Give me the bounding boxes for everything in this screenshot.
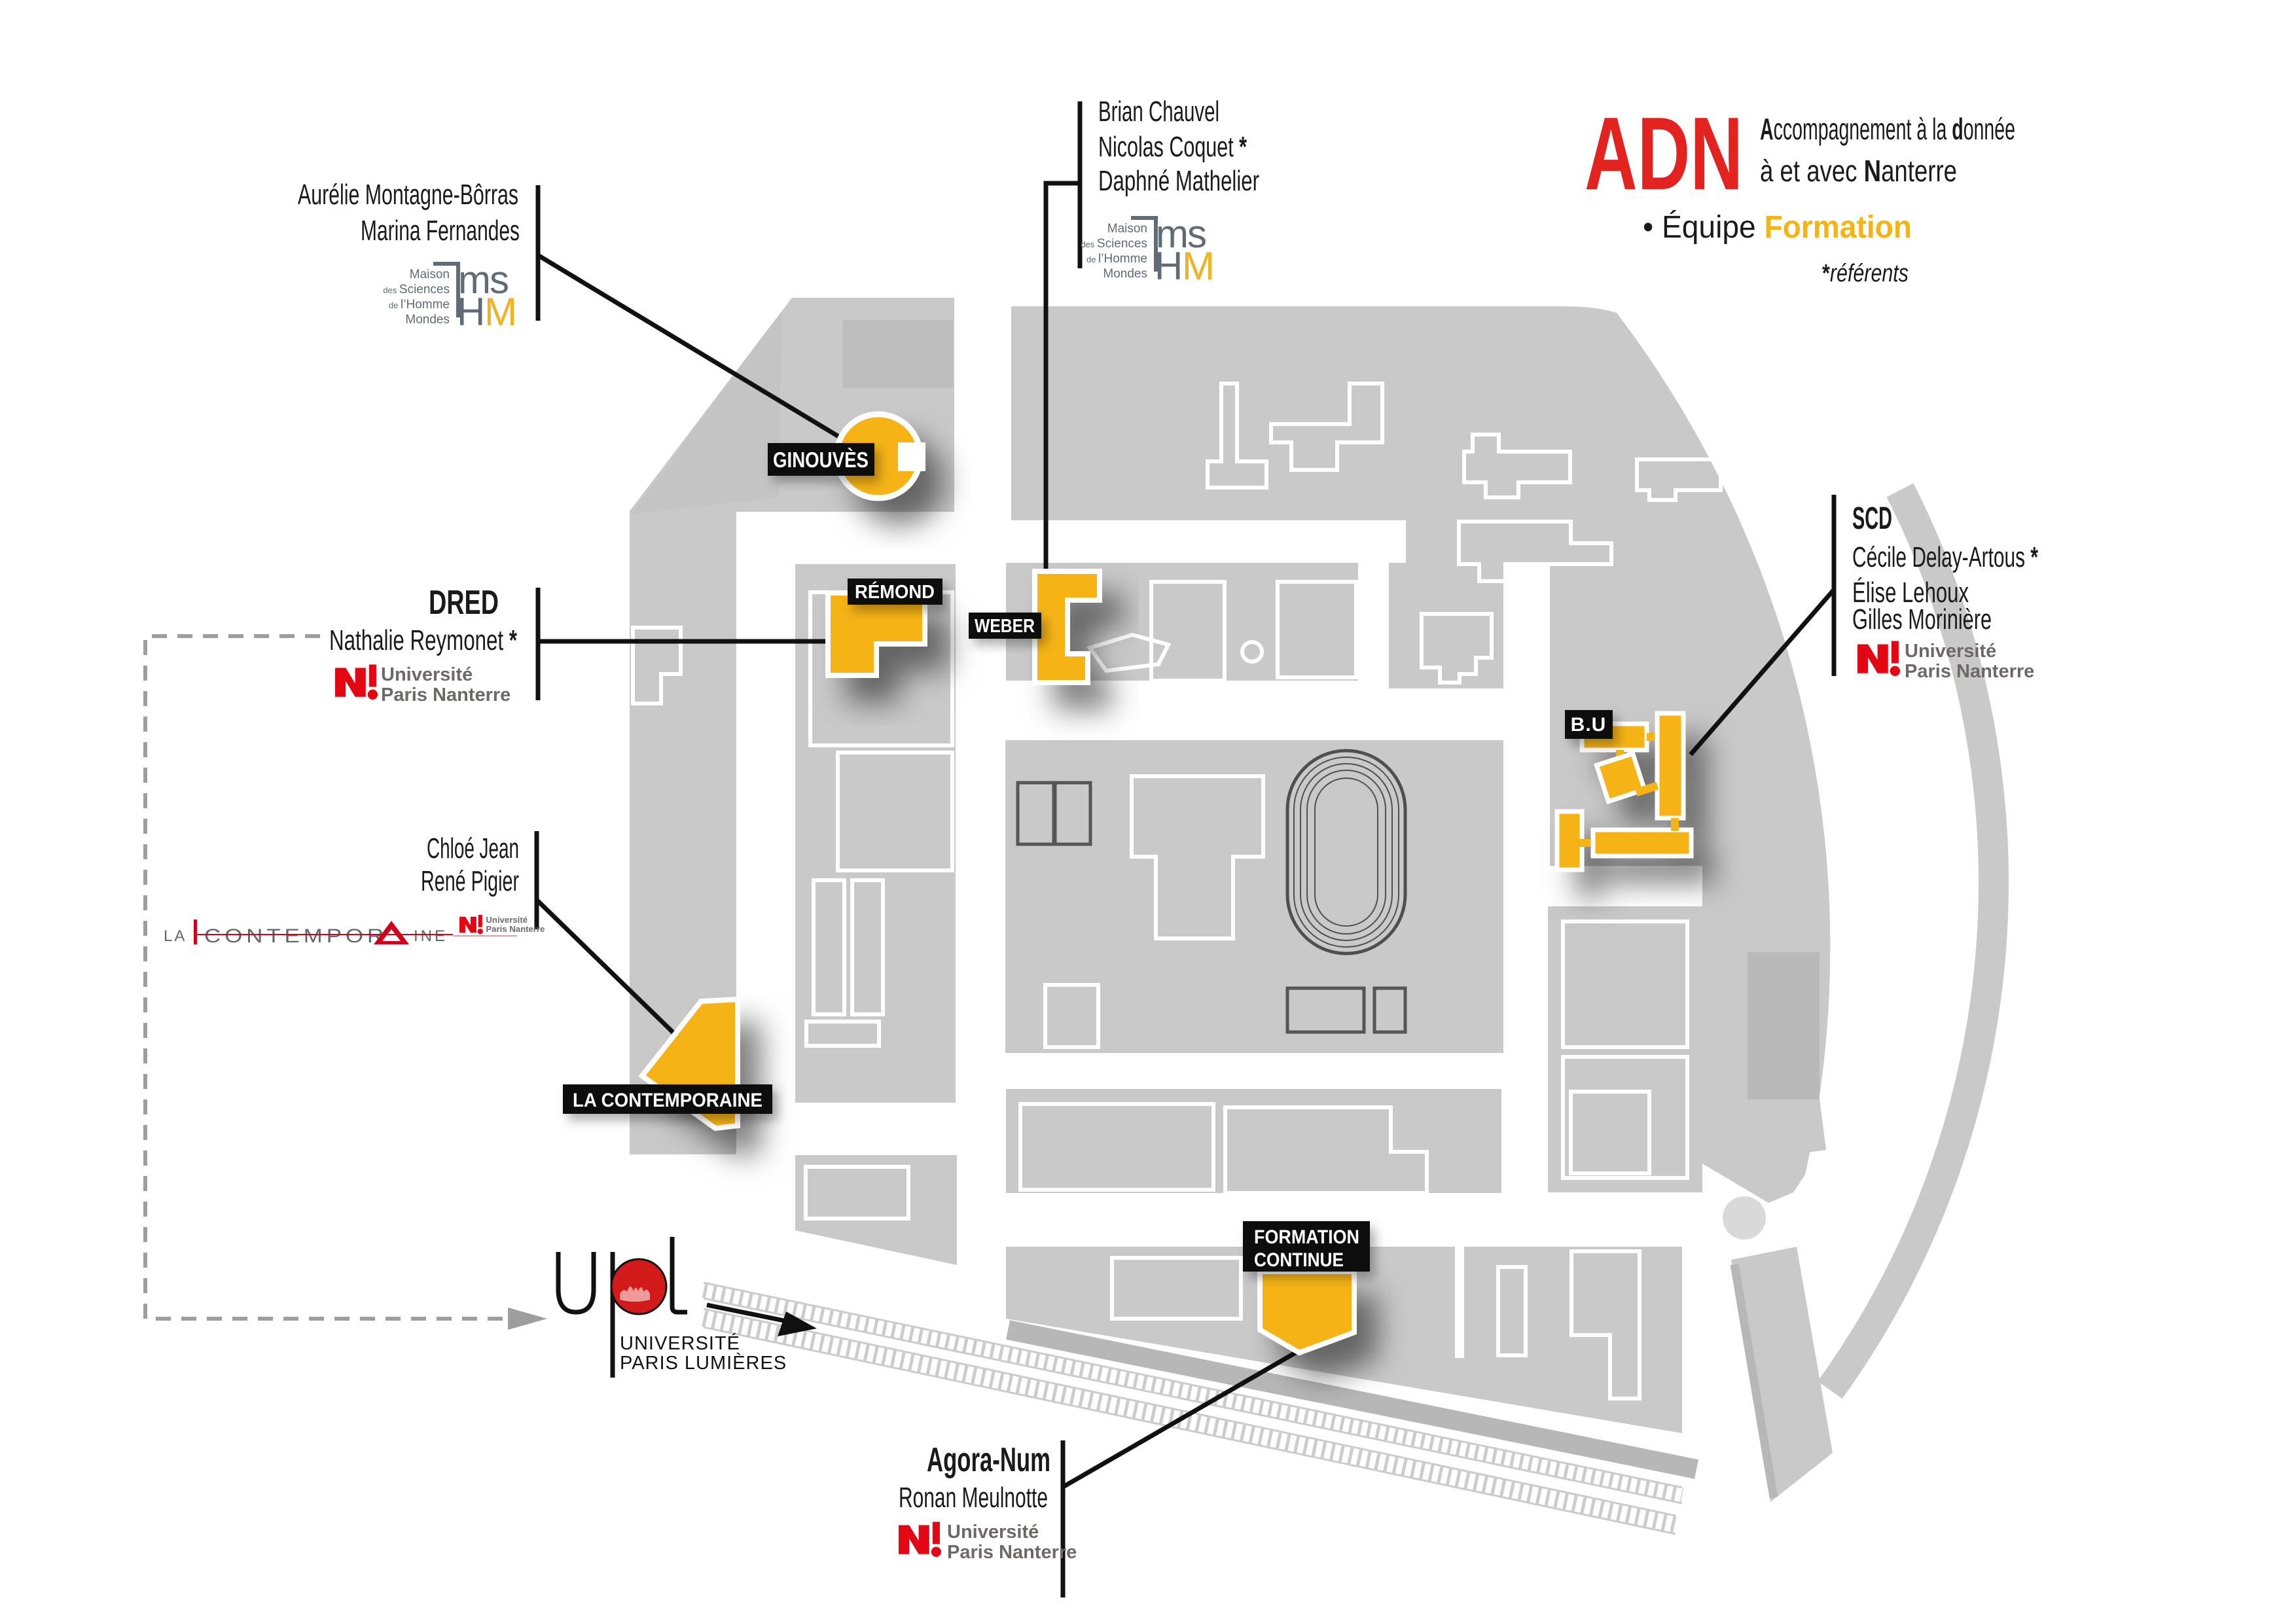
svg-text:Université: Université xyxy=(1905,641,1996,662)
svg-text:Université: Université xyxy=(381,664,473,685)
svg-text:Paris Nanterre: Paris Nanterre xyxy=(486,924,545,934)
svg-text:Université: Université xyxy=(947,1522,1039,1543)
svg-text:PARIS LUMIÈRES: PARIS LUMIÈRES xyxy=(620,1352,787,1374)
svg-text:LA CONTEMPORAINE: LA CONTEMPORAINE xyxy=(573,1090,762,1111)
svg-text:M: M xyxy=(484,290,517,334)
svg-text:*référents: *référents xyxy=(1822,260,1909,287)
svg-text:FORMATION: FORMATION xyxy=(1254,1226,1359,1248)
svg-text:Accompagnement à la donnée: Accompagnement à la donnée xyxy=(1760,112,2015,146)
svg-text:ADN: ADN xyxy=(1585,96,1743,211)
svg-text:H: H xyxy=(1155,244,1183,288)
svg-text:H: H xyxy=(457,290,485,334)
svg-text:à et avec Nanterre: à et avec Nanterre xyxy=(1760,154,1957,188)
svg-text:GINOUVÈS: GINOUVÈS xyxy=(773,448,869,472)
svg-text:de l’Homme: de l’Homme xyxy=(389,298,450,312)
svg-text:Gilles Morinière: Gilles Morinière xyxy=(1852,603,1992,635)
svg-text:Ronan Meulnotte: Ronan Meulnotte xyxy=(899,1482,1048,1514)
svg-text:René Pigier: René Pigier xyxy=(421,865,519,897)
svg-text:INE: INE xyxy=(414,927,448,945)
svg-text:Paris Nanterre: Paris Nanterre xyxy=(947,1542,1077,1563)
svg-text:Maison: Maison xyxy=(410,268,450,281)
svg-text:Nicolas Coquet *: Nicolas Coquet * xyxy=(1098,131,1247,163)
svg-text:Agora-Num: Agora-Num xyxy=(927,1441,1050,1479)
svg-text:Chloé Jean: Chloé Jean xyxy=(427,832,519,865)
svg-text:des Sciences: des Sciences xyxy=(1081,237,1147,251)
svg-text:Daphné Mathelier: Daphné Mathelier xyxy=(1098,165,1259,197)
svg-text:B.U: B.U xyxy=(1571,714,1607,736)
svg-text:LA: LA xyxy=(164,927,187,945)
svg-text:Brian Chauvel: Brian Chauvel xyxy=(1098,96,1219,128)
svg-text:WEBER: WEBER xyxy=(975,616,1035,637)
svg-text:des Sciences: des Sciences xyxy=(383,283,450,296)
svg-text:CONTEMPOR: CONTEMPOR xyxy=(204,925,387,947)
svg-text:Maison: Maison xyxy=(1107,222,1147,236)
svg-text:Aurélie Montagne-Bôrras: Aurélie Montagne-Bôrras xyxy=(298,179,518,211)
svg-text:Marina Fernandes: Marina Fernandes xyxy=(361,215,520,247)
svg-text:M: M xyxy=(1182,244,1215,288)
svg-text:UNIVERSITÉ: UNIVERSITÉ xyxy=(620,1332,740,1354)
svg-text:RÉMOND: RÉMOND xyxy=(855,580,935,603)
svg-text:Mondes: Mondes xyxy=(405,313,450,327)
svg-text:Nathalie Reymonet *: Nathalie Reymonet * xyxy=(329,624,518,656)
svg-text:de l’Homme: de l’Homme xyxy=(1086,252,1147,266)
svg-text:• Équipe Formation: • Équipe Formation xyxy=(1643,210,1912,245)
svg-text:Université: Université xyxy=(486,915,528,925)
svg-text:Paris Nanterre: Paris Nanterre xyxy=(1905,661,2034,682)
svg-text:SCD: SCD xyxy=(1852,501,1892,536)
svg-text:Paris Nanterre: Paris Nanterre xyxy=(381,685,511,705)
svg-text:Cécile Delay-Artous *: Cécile Delay-Artous * xyxy=(1852,541,2039,573)
svg-text:DRED: DRED xyxy=(429,584,499,622)
svg-text:Mondes: Mondes xyxy=(1103,267,1147,281)
svg-text:CONTINUE: CONTINUE xyxy=(1254,1249,1344,1271)
